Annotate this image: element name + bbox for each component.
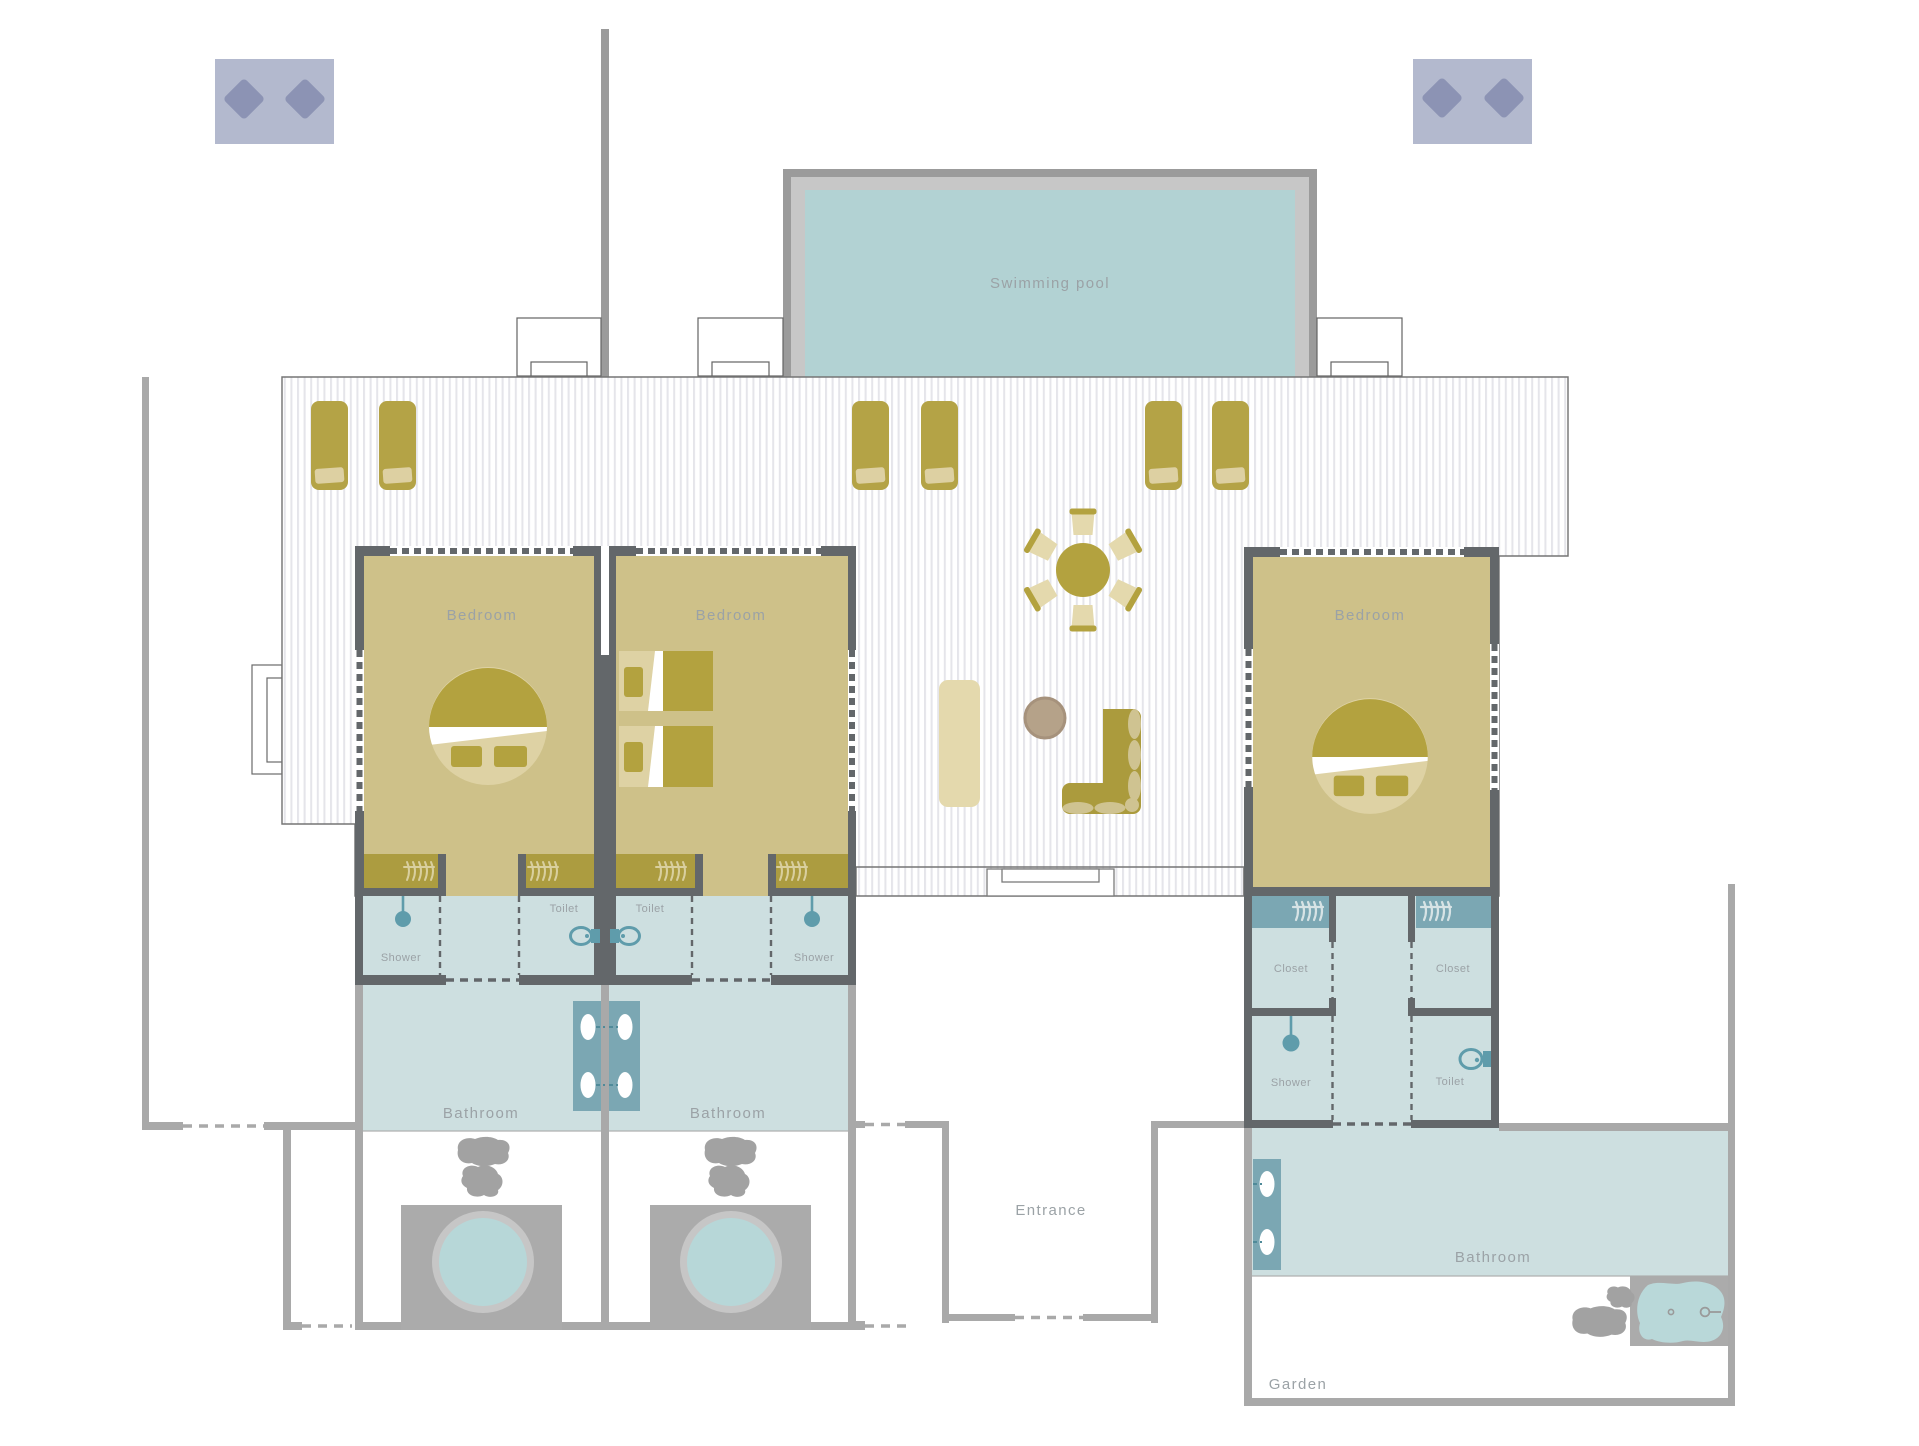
svg-text:Shower: Shower (794, 952, 834, 964)
svg-text:Toilet: Toilet (636, 903, 665, 915)
svg-text:Bedroom: Bedroom (1335, 607, 1406, 624)
svg-text:Entrance: Entrance (1015, 1202, 1086, 1219)
svg-text:Bedroom: Bedroom (447, 607, 518, 624)
svg-text:Bathroom: Bathroom (443, 1105, 519, 1122)
svg-text:Bedroom: Bedroom (696, 607, 767, 624)
svg-text:Closet: Closet (1274, 963, 1308, 975)
svg-text:Toilet: Toilet (1436, 1076, 1465, 1088)
svg-text:Shower: Shower (1271, 1077, 1311, 1089)
svg-text:Bathroom: Bathroom (1455, 1249, 1531, 1266)
svg-text:Shower: Shower (381, 952, 421, 964)
svg-text:Toilet: Toilet (550, 903, 579, 915)
svg-text:Garden: Garden (1269, 1376, 1327, 1393)
svg-text:Swimming pool: Swimming pool (990, 275, 1110, 292)
svg-text:Closet: Closet (1436, 963, 1470, 975)
svg-text:Bathroom: Bathroom (690, 1105, 766, 1122)
